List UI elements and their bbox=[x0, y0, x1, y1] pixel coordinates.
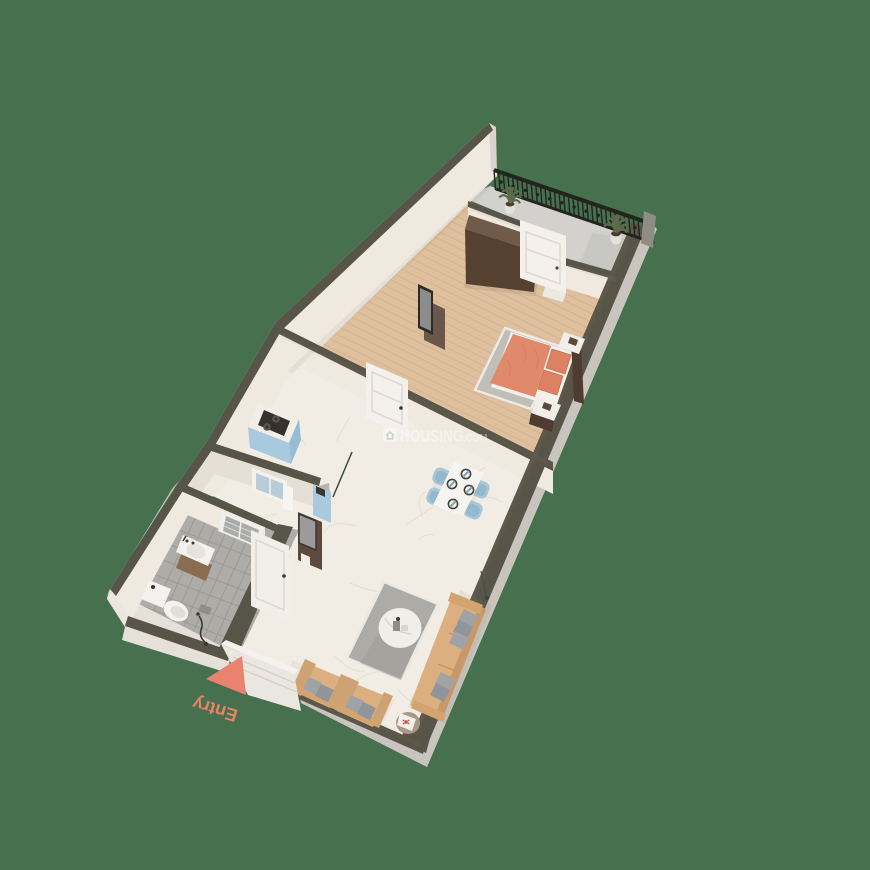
svg-text:HOUSING: HOUSING bbox=[400, 427, 463, 446]
svg-text:.COM: .COM bbox=[463, 433, 487, 445]
